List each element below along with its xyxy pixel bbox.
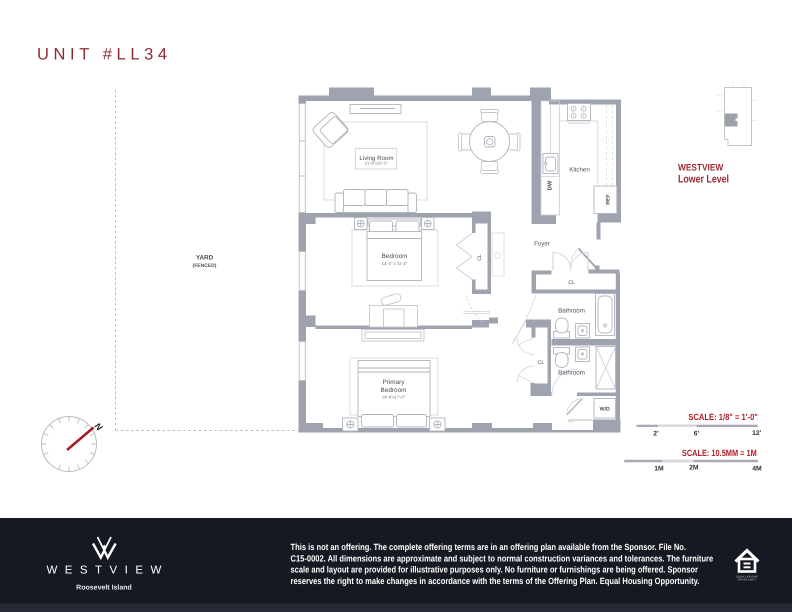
svg-text:YARD: YARD [196, 255, 214, 262]
svg-text:Bedroom: Bedroom [381, 387, 407, 394]
svg-text:2M: 2M [689, 465, 699, 472]
svg-text:(FENCED): (FENCED) [193, 263, 217, 269]
svg-text:CL: CL [477, 254, 483, 261]
svg-text:SCALE: 1/8" = 1'-0": SCALE: 1/8" = 1'-0" [688, 412, 758, 422]
svg-text:Kitchen: Kitchen [569, 167, 590, 174]
svg-text:scale and layout are provided: scale and layout are provided for illust… [291, 565, 699, 575]
svg-text:C15-0002. All dimensions are a: C15-0002. All dimensions are approximate… [291, 553, 714, 563]
svg-text:Lower Level: Lower Level [678, 174, 729, 186]
svg-text:Foyer: Foyer [534, 241, 550, 248]
svg-text:Bathroom: Bathroom [558, 370, 585, 377]
svg-text:Roosevelt Island: Roosevelt Island [76, 584, 132, 592]
svg-text:WESTVIEW: WESTVIEW [678, 162, 723, 173]
svg-text:14'-0" x 11'-4": 14'-0" x 11'-4" [382, 261, 408, 266]
svg-text:21'-6"x12'-3": 21'-6"x12'-3" [365, 161, 388, 166]
svg-text:14'-6"x17'-0": 14'-6"x17'-0" [382, 395, 406, 400]
svg-text:12': 12' [752, 430, 762, 437]
svg-text:DW: DW [547, 180, 553, 190]
svg-text:1M: 1M [654, 465, 664, 472]
svg-text:Primary: Primary [382, 379, 405, 386]
svg-text:6': 6' [694, 430, 700, 437]
svg-text:Bedroom: Bedroom [382, 253, 408, 260]
svg-text:Bathroom: Bathroom [558, 308, 585, 315]
svg-text:OPPORTUNITY: OPPORTUNITY [738, 579, 757, 582]
svg-text:reserves the right to make cha: reserves the right to make changes in ac… [291, 576, 700, 586]
svg-text:2': 2' [653, 430, 659, 437]
svg-text:4M: 4M [752, 465, 762, 472]
svg-text:This is not an offering. The c: This is not an offering. The complete of… [291, 542, 687, 552]
svg-text:UNIT #LL34: UNIT #LL34 [37, 46, 172, 64]
svg-text:CL: CL [568, 280, 575, 286]
svg-text:CL: CL [538, 360, 545, 366]
svg-text:SCALE: 10.5MM = 1M: SCALE: 10.5MM = 1M [682, 448, 757, 458]
svg-text:N: N [93, 421, 105, 433]
svg-text:W/D: W/D [600, 406, 610, 412]
svg-text:REF: REF [606, 194, 612, 204]
